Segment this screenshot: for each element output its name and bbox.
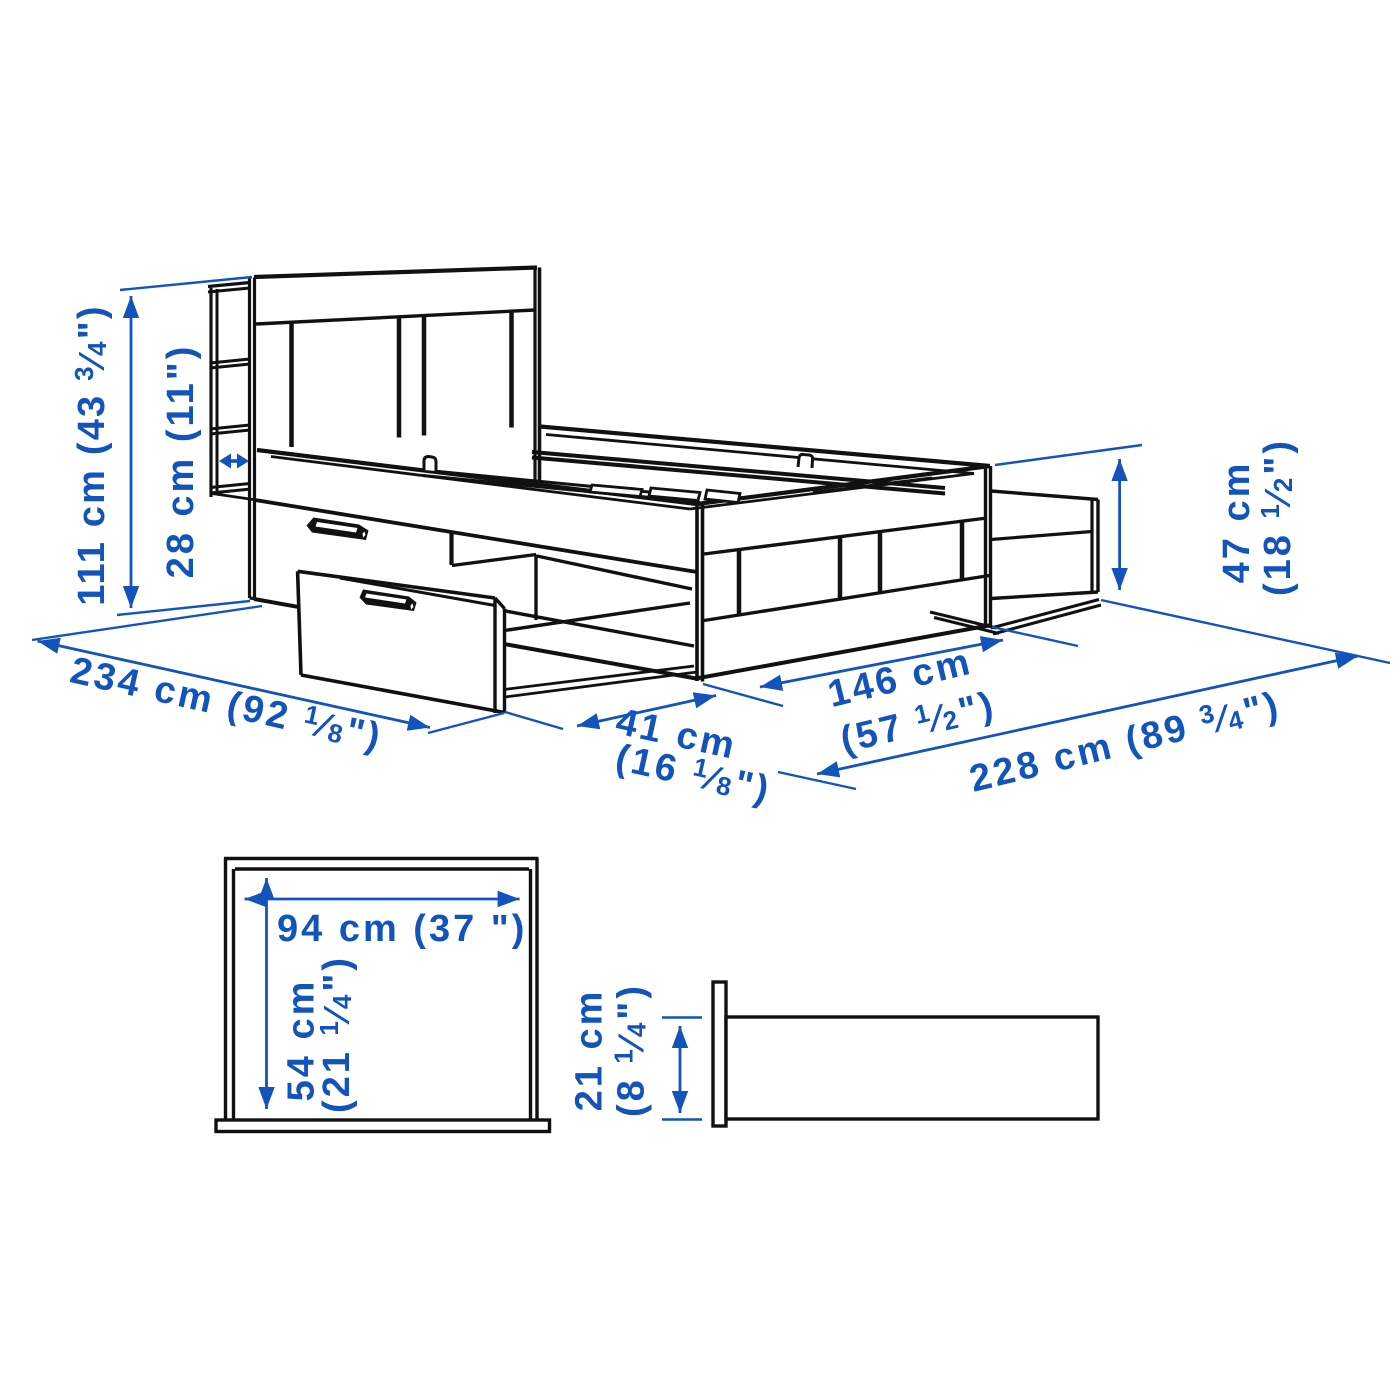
svg-text:47 cm: 47 cm xyxy=(1216,461,1258,584)
svg-text:94 cm (37 "): 94 cm (37 ") xyxy=(277,908,527,950)
svg-text:28 cm (11"): 28 cm (11") xyxy=(160,344,202,579)
svg-text:21 cm: 21 cm xyxy=(569,989,611,1112)
